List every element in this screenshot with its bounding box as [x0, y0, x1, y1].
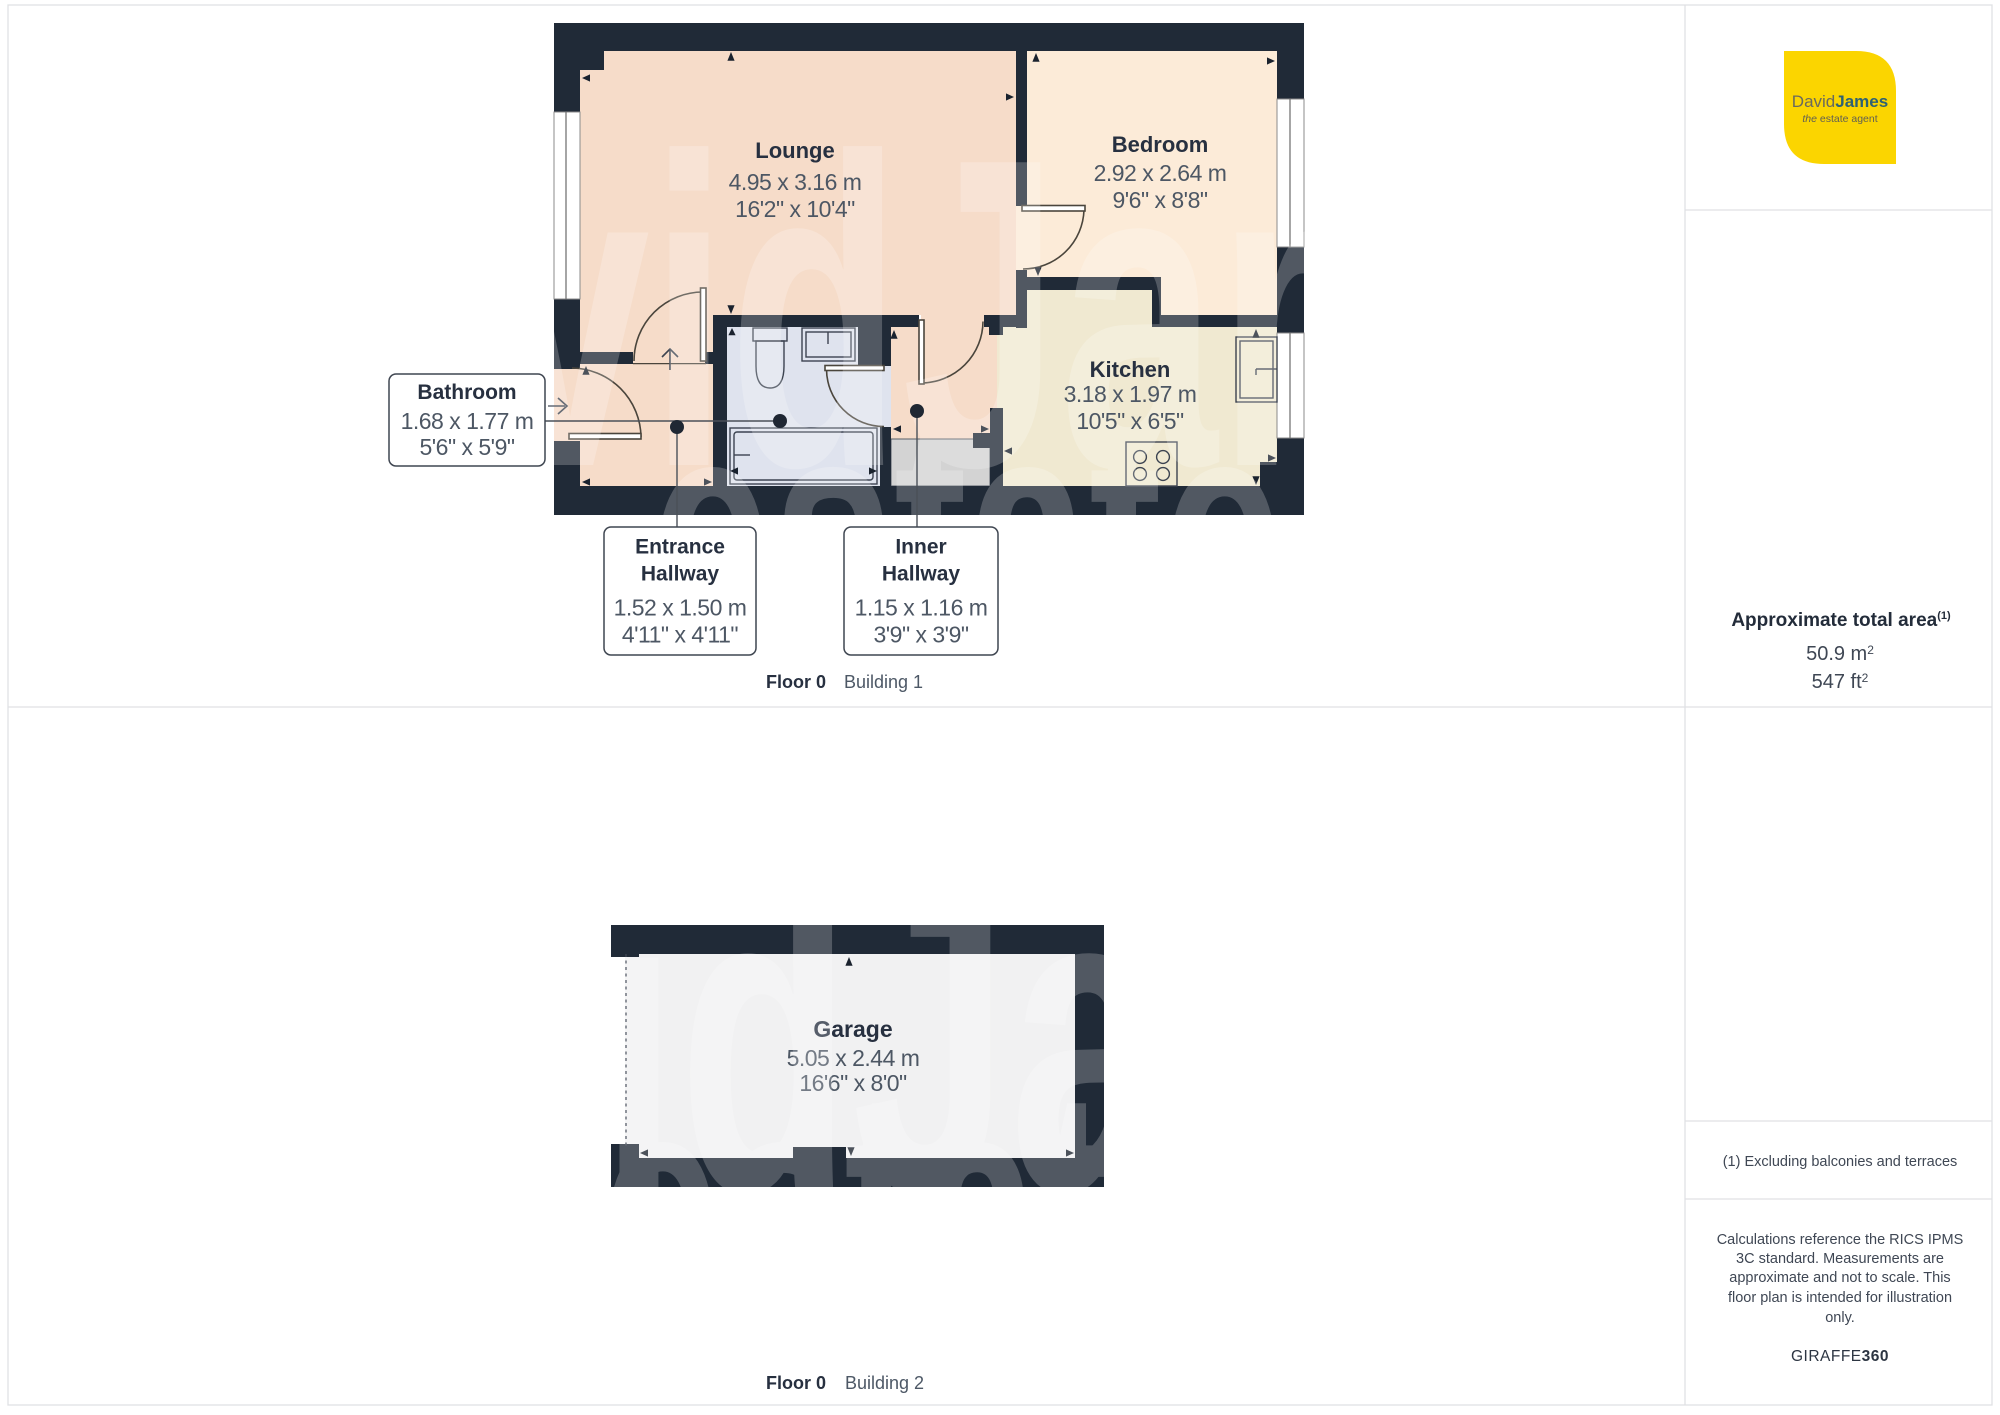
svg-text:Hallway: Hallway [882, 563, 961, 586]
svg-text:10'5" x 6'5": 10'5" x 6'5" [1076, 408, 1184, 434]
svg-text:547 ft2: 547 ft2 [1812, 671, 1869, 693]
svg-text:3C standard. Measurements are: 3C standard. Measurements are [1736, 1251, 1944, 1267]
svg-text:Building 2: Building 2 [845, 1373, 924, 1393]
svg-text:DavidJames: DavidJames [1792, 92, 1888, 111]
svg-text:Calculations reference the RIC: Calculations reference the RICS IPMS [1717, 1232, 1964, 1248]
svg-text:GIRAFFE360: GIRAFFE360 [1791, 1348, 1889, 1365]
svg-text:Lounge: Lounge [755, 138, 834, 163]
svg-text:1.15 x 1.16 m: 1.15 x 1.16 m [855, 595, 988, 621]
svg-text:Inner: Inner [895, 536, 946, 559]
svg-text:estate age: estate age [600, 1017, 1673, 1399]
svg-text:floor plan is intended for ill: floor plan is intended for illustration [1728, 1290, 1952, 1306]
svg-text:Building 1: Building 1 [844, 672, 923, 692]
svg-text:Approximate total area(1): Approximate total area(1) [1731, 610, 1951, 631]
svg-text:Entrance: Entrance [635, 536, 725, 559]
svg-text:approximate and not to scale.: approximate and not to scale. This [1729, 1270, 1950, 1286]
svg-text:Bathroom: Bathroom [417, 381, 516, 404]
svg-text:50.9 m2: 50.9 m2 [1806, 643, 1874, 665]
svg-text:the estate agent: the estate agent [1802, 113, 1877, 125]
svg-text:5'6" x 5'9": 5'6" x 5'9" [419, 434, 514, 460]
svg-text:Floor 0: Floor 0 [766, 1373, 826, 1393]
svg-text:Kitchen: Kitchen [1090, 357, 1171, 382]
svg-text:1.52 x 1.50 m: 1.52 x 1.50 m [614, 595, 747, 621]
svg-text:3.18 x 1.97 m: 3.18 x 1.97 m [1064, 381, 1197, 407]
svg-text:1.68 x 1.77 m: 1.68 x 1.77 m [401, 408, 534, 434]
svg-text:(1) Excluding balconies and te: (1) Excluding balconies and terraces [1723, 1154, 1958, 1170]
svg-text:4'11" x 4'11": 4'11" x 4'11" [622, 622, 739, 648]
svg-text:2.92 x 2.64 m: 2.92 x 2.64 m [1094, 160, 1227, 186]
svg-text:4.95 x 3.16 m: 4.95 x 3.16 m [729, 169, 862, 195]
svg-text:Bedroom: Bedroom [1112, 132, 1209, 157]
svg-text:Hallway: Hallway [641, 563, 720, 586]
svg-text:Floor 0: Floor 0 [766, 672, 826, 692]
svg-text:3'9" x 3'9": 3'9" x 3'9" [873, 622, 968, 648]
svg-text:only.: only. [1825, 1310, 1855, 1326]
svg-text:16'2" x 10'4": 16'2" x 10'4" [735, 196, 855, 222]
svg-text:9'6" x 8'8": 9'6" x 8'8" [1112, 187, 1207, 213]
